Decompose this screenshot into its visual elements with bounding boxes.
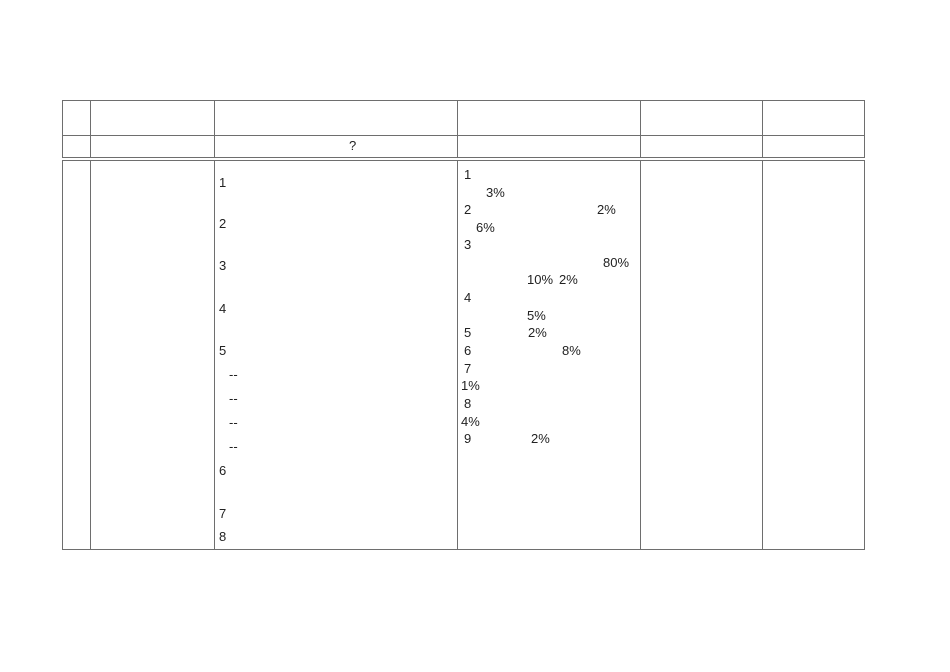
question-cell-5 — [641, 136, 763, 157]
content-note-text: 2% — [559, 273, 578, 286]
procedure-step-text: -- — [229, 416, 238, 429]
question-cell-4 — [458, 136, 641, 157]
procedure-step-text: 2 — [219, 217, 226, 230]
content-note-text: 6 — [464, 344, 471, 357]
content-note-text: 80% — [603, 256, 629, 269]
content-note-text: 5 — [464, 326, 471, 339]
content-note-text: 2 — [464, 203, 471, 216]
content-cell-6 — [763, 161, 864, 549]
content-cell-1 — [63, 161, 91, 549]
procedure-step-text: 4 — [219, 302, 226, 315]
content-note-text: 2% — [597, 203, 616, 216]
header-cell-3 — [215, 101, 458, 135]
content-cell-procedure — [215, 161, 458, 549]
content-note-text: 10% — [527, 273, 553, 286]
table-question-row — [62, 136, 865, 158]
question-cell-3 — [215, 136, 458, 157]
content-note-text: 7 — [464, 362, 471, 375]
procedure-step-text: 1 — [219, 176, 226, 189]
content-cell-2 — [91, 161, 215, 549]
content-note-text: 4% — [461, 415, 480, 428]
content-note-text: 3 — [464, 238, 471, 251]
header-cell-5 — [641, 101, 763, 135]
content-note-text: 6% — [476, 221, 495, 234]
header-cell-6 — [763, 101, 864, 135]
content-note-text: 2% — [528, 326, 547, 339]
content-note-text: 9 — [464, 432, 471, 445]
question-cell-2 — [91, 136, 215, 157]
content-note-text: 1% — [461, 379, 480, 392]
document-page: ?12345--------67813%22%6%380%10%2%45%52%… — [0, 0, 950, 672]
content-note-text: 3% — [486, 186, 505, 199]
question-mark-text: ? — [349, 139, 356, 152]
procedure-step-text: 5 — [219, 344, 226, 357]
content-note-text: 8% — [562, 344, 581, 357]
question-cell-6 — [763, 136, 864, 157]
content-note-text: 4 — [464, 291, 471, 304]
procedure-step-text: 8 — [219, 530, 226, 543]
header-cell-2 — [91, 101, 215, 135]
procedure-step-text: -- — [229, 440, 238, 453]
content-note-text: 1 — [464, 168, 471, 181]
procedure-step-text: -- — [229, 392, 238, 405]
header-cell-4 — [458, 101, 641, 135]
procedure-step-text: 3 — [219, 259, 226, 272]
question-cell-1 — [63, 136, 91, 157]
table-header-row — [62, 100, 865, 136]
procedure-step-text: -- — [229, 368, 238, 381]
header-cell-1 — [63, 101, 91, 135]
content-note-text: 8 — [464, 397, 471, 410]
content-note-text: 5% — [527, 309, 546, 322]
content-cell-5 — [641, 161, 763, 549]
content-note-text: 2% — [531, 432, 550, 445]
procedure-step-text: 6 — [219, 464, 226, 477]
procedure-step-text: 7 — [219, 507, 226, 520]
